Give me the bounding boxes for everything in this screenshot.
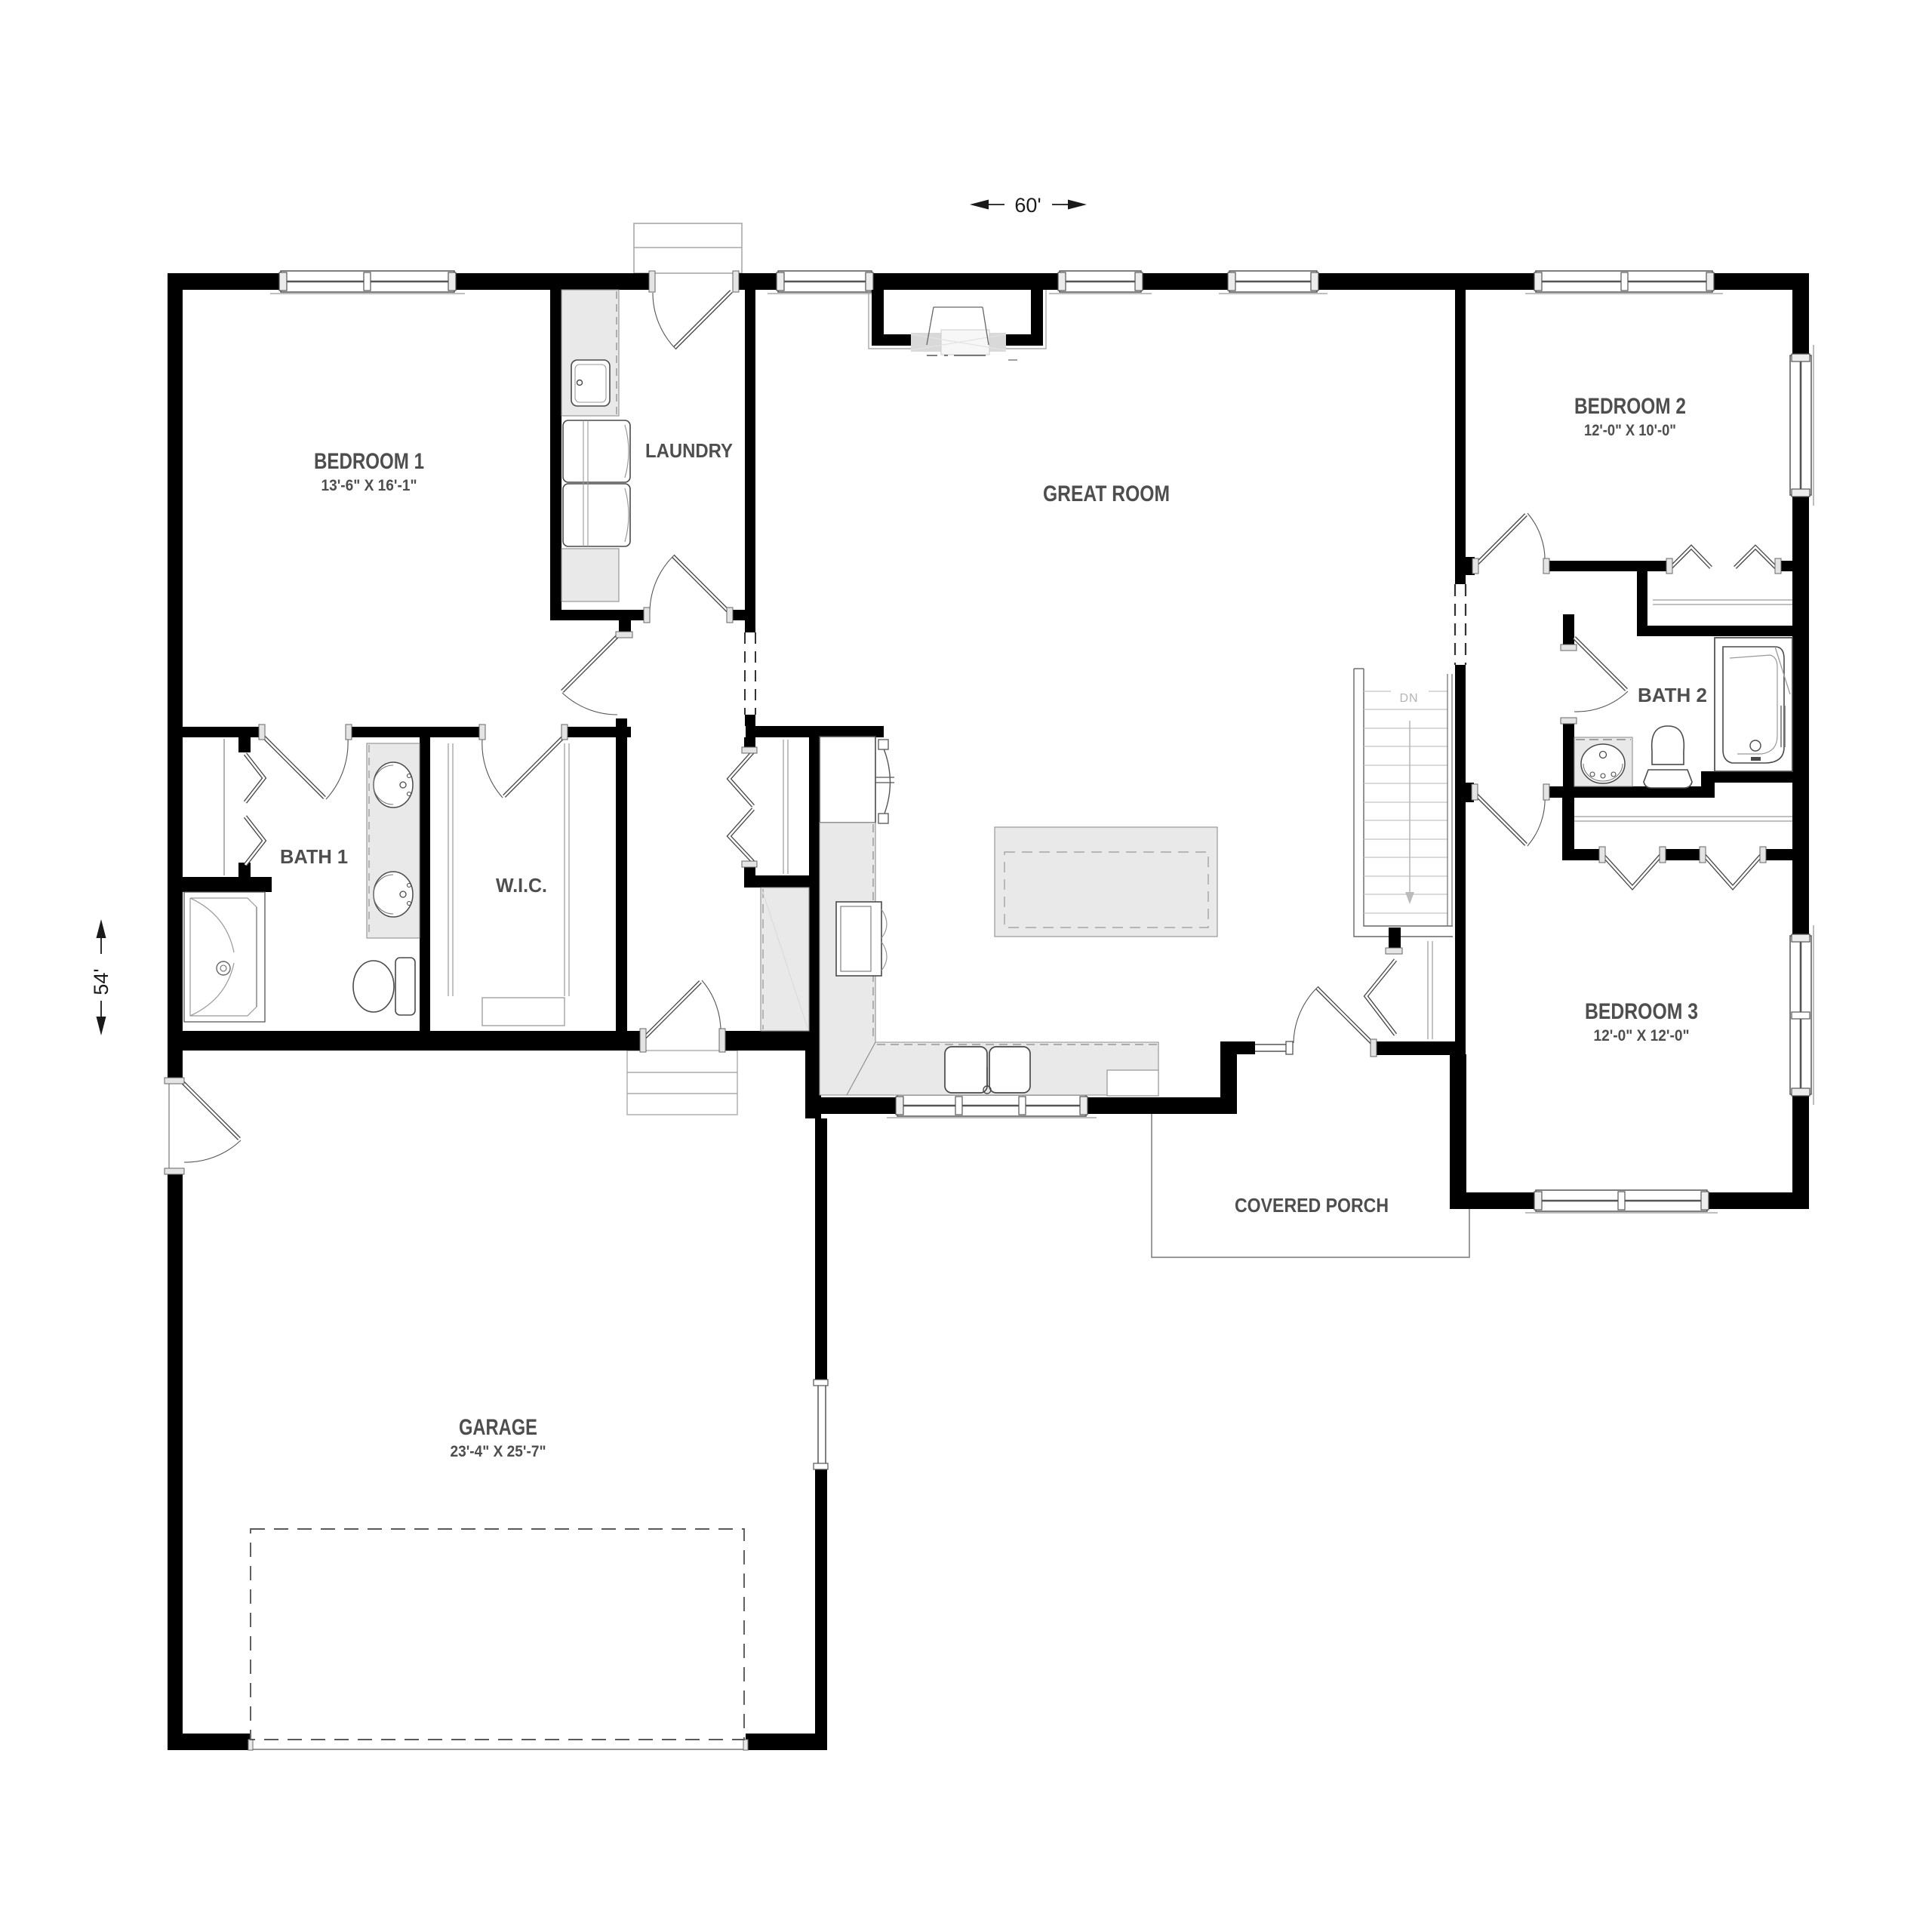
svg-text:BEDROOM 2: BEDROOM 2: [1574, 394, 1686, 419]
svg-text:GREAT ROOM: GREAT ROOM: [1043, 481, 1170, 506]
svg-text:DN: DN: [1399, 692, 1418, 705]
svg-text:GARAGE: GARAGE: [459, 1415, 537, 1440]
svg-text:12'-0" X 10'-0": 12'-0" X 10'-0": [1584, 422, 1676, 439]
svg-text:BATH 1: BATH 1: [280, 845, 348, 868]
svg-text:BEDROOM 3: BEDROOM 3: [1585, 999, 1698, 1024]
svg-text:13'-6" X 16'-1": 13'-6" X 16'-1": [321, 477, 417, 494]
svg-text:LAUNDRY: LAUNDRY: [645, 439, 733, 462]
svg-text:60': 60': [1014, 194, 1041, 217]
svg-text:BATH 2: BATH 2: [1638, 684, 1707, 706]
svg-text:BEDROOM 1: BEDROOM 1: [314, 449, 424, 474]
svg-text:W.I.C.: W.I.C.: [496, 874, 547, 897]
svg-text:54': 54': [90, 968, 112, 995]
svg-text:COVERED PORCH: COVERED PORCH: [1235, 1194, 1389, 1217]
svg-text:23'-4" X 25'-7": 23'-4" X 25'-7": [451, 1443, 546, 1460]
svg-text:12'-0" X 12'-0": 12'-0" X 12'-0": [1594, 1027, 1690, 1044]
